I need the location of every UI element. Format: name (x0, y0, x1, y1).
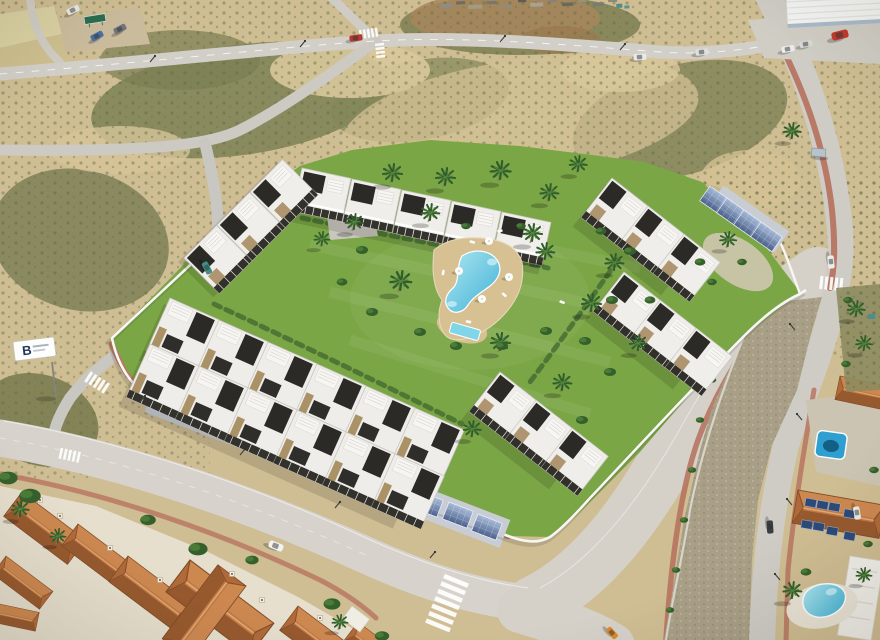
vignette-overlay (0, 0, 880, 640)
aerial-photo: B (0, 0, 880, 640)
